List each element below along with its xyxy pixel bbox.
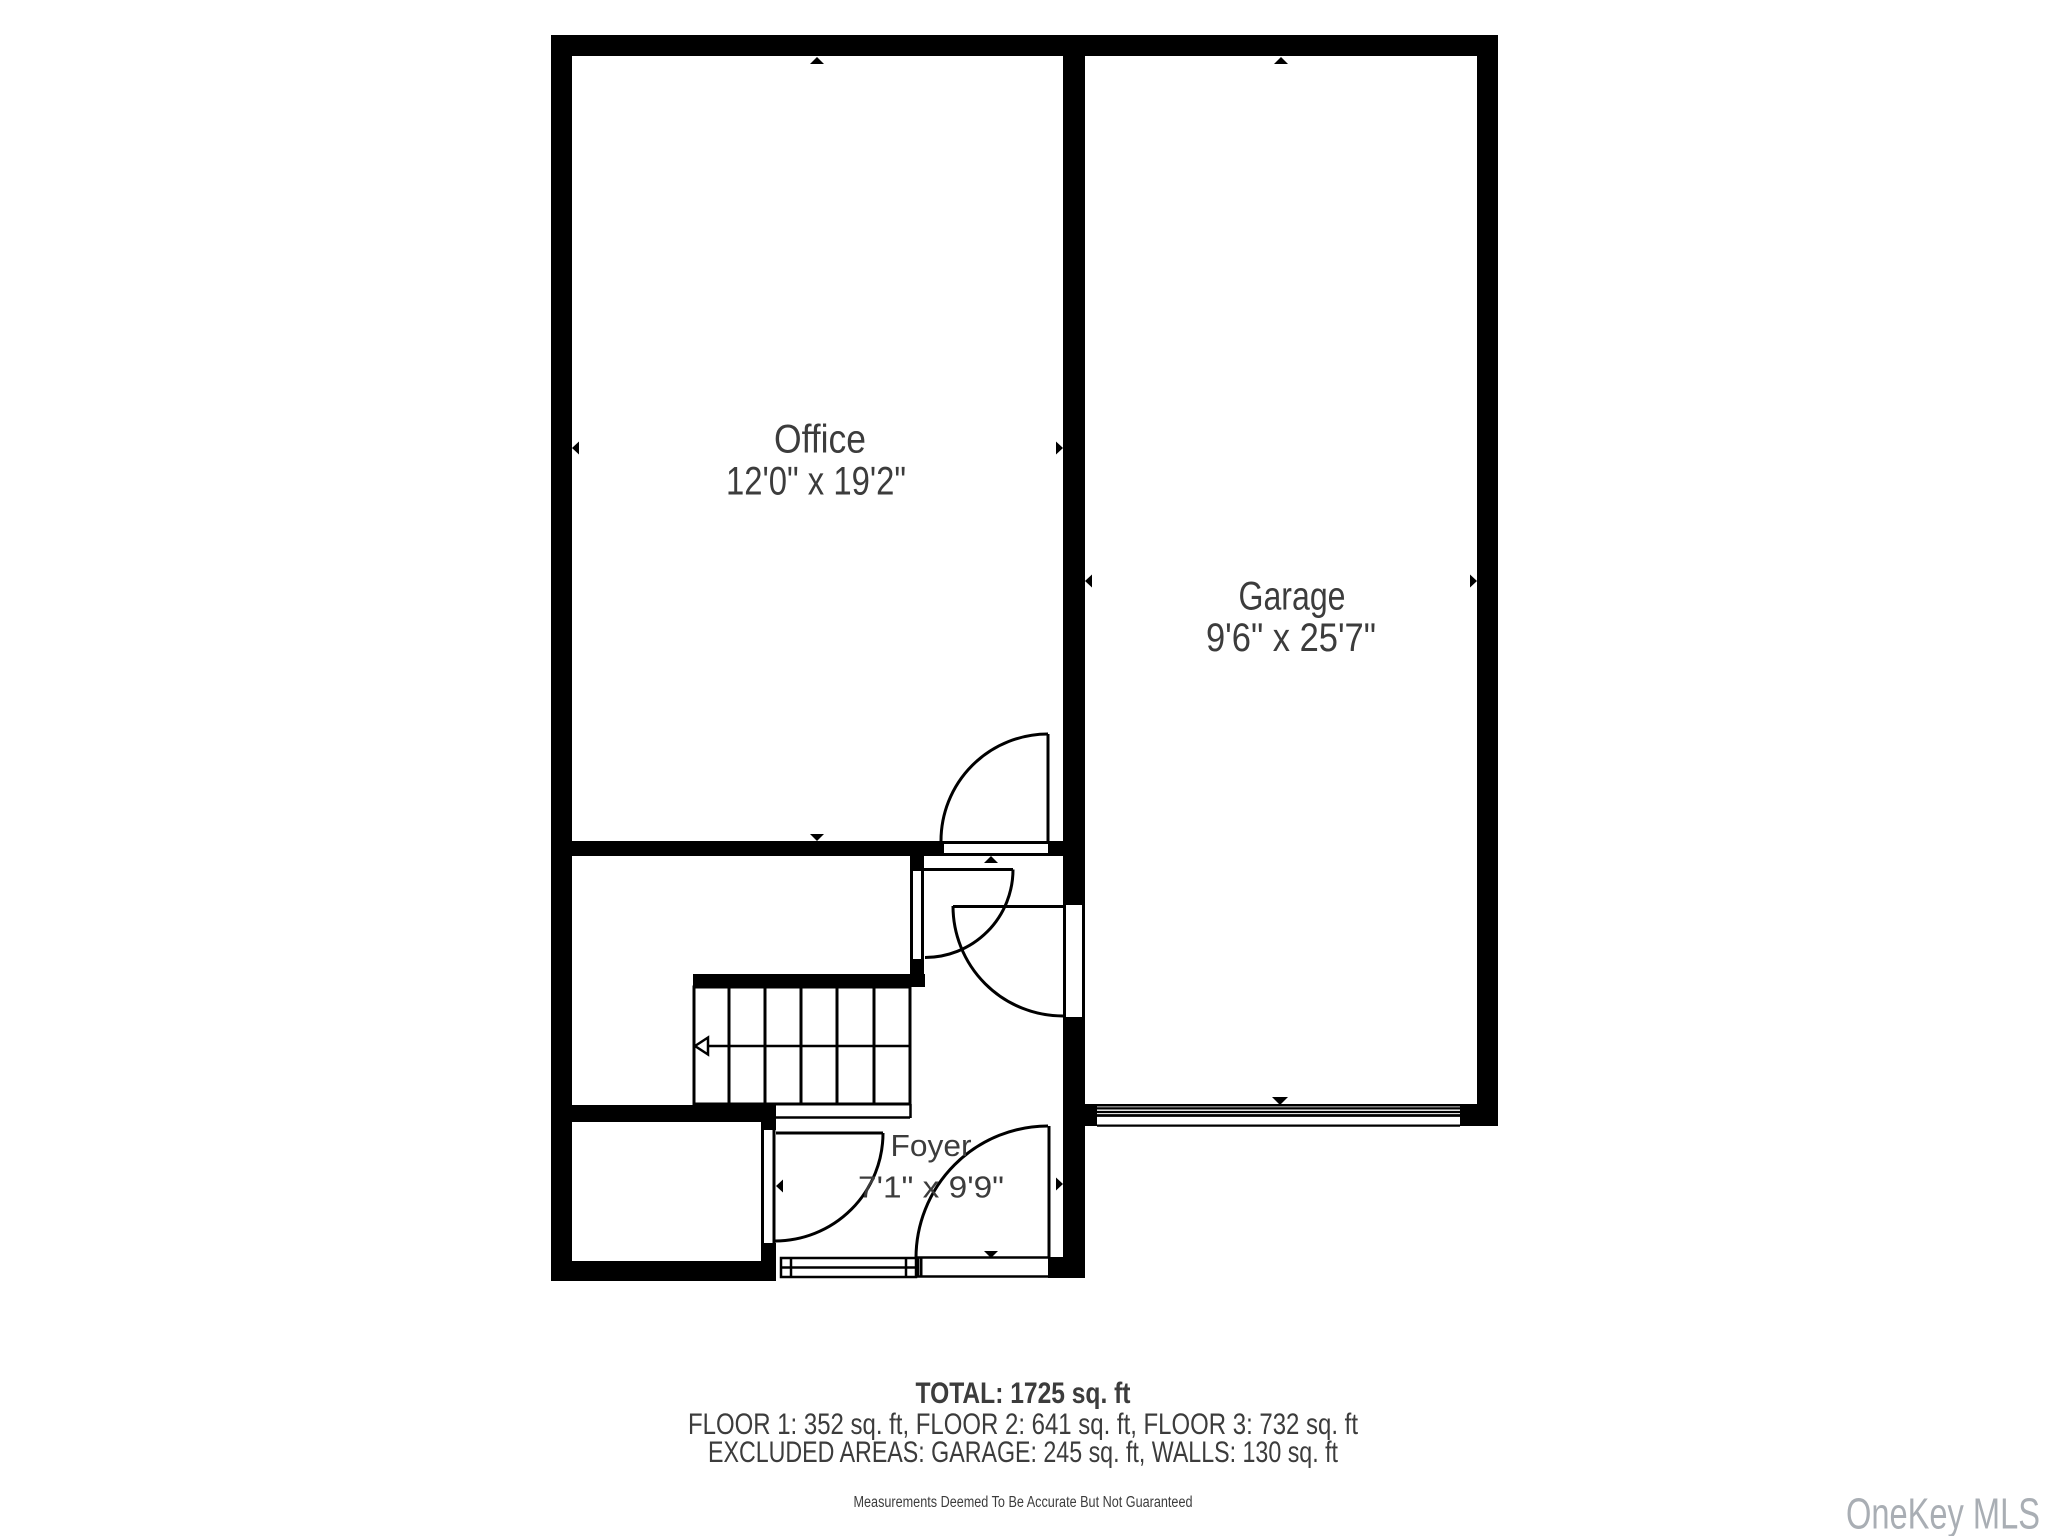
- svg-text:Foyer: Foyer: [891, 1128, 972, 1163]
- svg-text:7'1" x 9'9": 7'1" x 9'9": [858, 1170, 1004, 1205]
- svg-text:EXCLUDED AREAS: GARAGE: 245 sq: EXCLUDED AREAS: GARAGE: 245 sq. ft, WALL…: [708, 1436, 1339, 1469]
- svg-text:TOTAL: 1725 sq. ft: TOTAL: 1725 sq. ft: [916, 1377, 1131, 1410]
- svg-text:12'0" x 19'2": 12'0" x 19'2": [726, 460, 906, 504]
- svg-text:Garage: Garage: [1239, 575, 1346, 619]
- svg-text:Office: Office: [774, 418, 866, 462]
- svg-text:9'6" x 25'7": 9'6" x 25'7": [1206, 616, 1376, 660]
- svg-text:OneKey MLS: OneKey MLS: [1846, 1490, 2040, 1536]
- svg-text:Measurements Deemed To Be Accu: Measurements Deemed To Be Accurate But N…: [854, 1494, 1193, 1511]
